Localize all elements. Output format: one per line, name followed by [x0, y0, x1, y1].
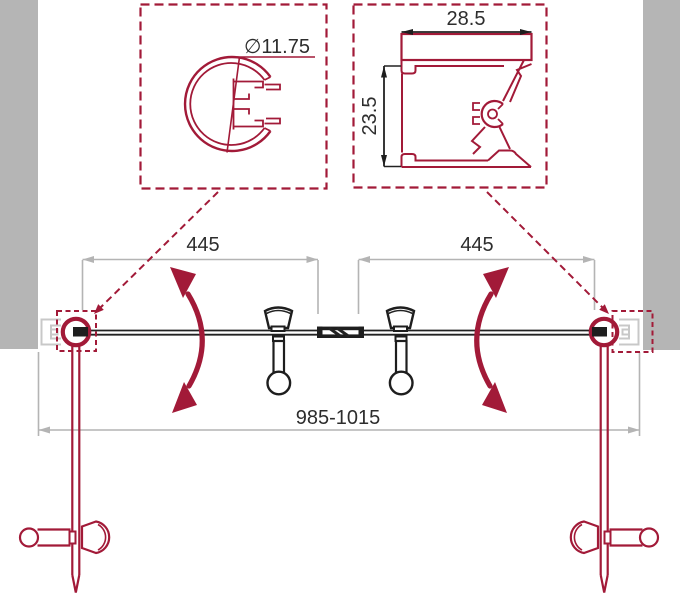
handle-ball — [20, 529, 38, 547]
dimension-profile-depth: 23.5 — [359, 66, 401, 167]
open-door-handle-left — [20, 522, 109, 554]
profile-slot-arm — [234, 82, 264, 88]
right-wall-profile-plan — [619, 320, 639, 345]
shower-door-drawing: 445 445 985-1015 — [0, 0, 680, 600]
magnet-strip-connector — [317, 327, 364, 338]
right-door-knob — [387, 308, 414, 395]
open-door-tip — [601, 575, 608, 593]
profile-slot-fork — [234, 94, 250, 115]
magnet-left-cap — [317, 327, 323, 338]
profile-bottom-foot — [488, 151, 531, 168]
technical-drawing-page: 445 445 985-1015 — [0, 0, 680, 600]
handle-ball — [640, 529, 658, 547]
swing-arc — [188, 294, 202, 386]
dimension-overall-width: 985-1015 — [39, 352, 640, 436]
knob-collar — [272, 327, 285, 332]
swing-arrowhead-up — [170, 267, 196, 298]
left-pivot-and-open-door — [20, 319, 109, 593]
profile-upper-strut — [503, 60, 532, 102]
right-leader-arrowhead — [599, 304, 609, 314]
knob-collar — [394, 327, 407, 332]
arrowhead-right — [583, 256, 595, 263]
arrowhead-left — [359, 256, 371, 263]
dimension-label: 445 — [186, 234, 219, 256]
diameter-label: ∅11.75 — [244, 36, 310, 58]
swing-arrowhead-up — [483, 267, 509, 298]
open-door-tip — [72, 575, 79, 593]
swing-arrowhead-down — [482, 382, 507, 413]
dimension-label: 28.5 — [447, 8, 486, 30]
callout-frames — [57, 5, 653, 353]
profile-slot-arm — [234, 121, 264, 127]
dimension-label: 23.5 — [359, 97, 381, 136]
left-wall-profile-plan — [42, 320, 62, 345]
right-leader-line — [487, 192, 604, 309]
wall-profile-inner — [619, 326, 629, 339]
left-door-knob — [265, 308, 292, 395]
profile-top-lip — [402, 60, 505, 74]
knob-stem — [396, 341, 407, 374]
left-swing-arrow — [170, 267, 202, 413]
dimension-left-445: 445 — [83, 234, 319, 314]
diameter-leader-line — [227, 57, 315, 153]
knob-stem — [274, 341, 285, 374]
profile-top-flange — [402, 34, 532, 60]
profile-inner-ring — [190, 63, 264, 145]
arrowhead-right — [628, 427, 640, 434]
right-glass-clamp — [592, 327, 607, 337]
profile-lower-tab — [265, 119, 281, 124]
profile-upper-tab — [265, 85, 281, 90]
open-door-handle-right — [571, 522, 658, 554]
arrowhead-right — [307, 256, 319, 263]
dimension-label: 985-1015 — [296, 407, 381, 429]
handle-collar — [70, 532, 76, 544]
knob-ball — [268, 372, 291, 395]
handle-collar — [605, 532, 611, 544]
left-glass-clamp — [73, 327, 88, 337]
wall-profile-section: 28.5 23.5 — [359, 8, 532, 167]
right-pivot-and-open-door — [571, 319, 658, 593]
arrowhead-left — [83, 256, 95, 263]
dimension-label: 445 — [460, 234, 493, 256]
profile-outer-ring — [185, 57, 270, 151]
knob-ball — [390, 372, 413, 395]
pivot-profile-section: ∅11.75 — [185, 36, 315, 153]
arrowhead-down — [381, 155, 387, 167]
right-swing-arrow — [477, 267, 509, 413]
swing-arrowhead-down — [172, 382, 197, 413]
profile-left-teeth — [473, 103, 480, 124]
dimension-profile-width: 28.5 — [402, 8, 532, 35]
profile-ring-core — [488, 110, 497, 119]
right-wall — [643, 0, 680, 350]
arrowhead-left — [39, 427, 51, 434]
walls — [0, 0, 680, 350]
profile-ring-teeth — [498, 104, 503, 124]
swing-arc — [477, 294, 491, 386]
profile-bottom-flange — [402, 154, 532, 167]
dimension-right-445: 445 — [359, 234, 595, 314]
left-wall — [0, 0, 38, 349]
magnet-right-cap — [359, 327, 365, 338]
arrowhead-up — [381, 66, 387, 78]
profile-clamp-ring — [482, 101, 503, 127]
